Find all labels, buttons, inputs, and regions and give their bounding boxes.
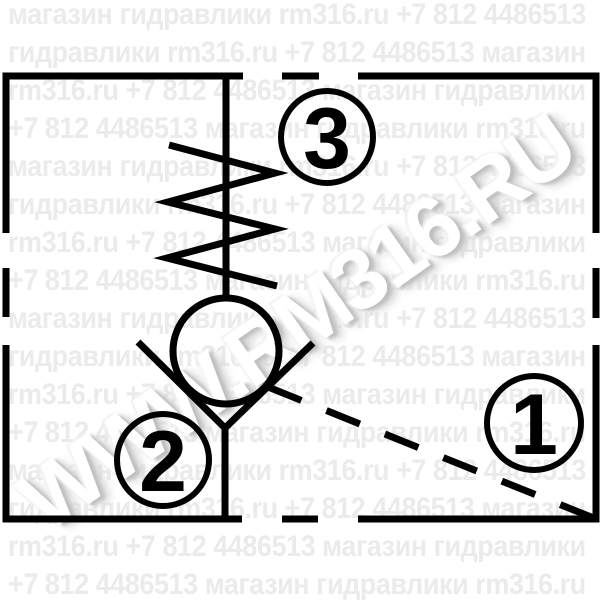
spring-symbol xyxy=(167,145,277,286)
valve-schematic: 3 2 1 xyxy=(0,0,600,600)
port-1-label: 1 xyxy=(510,377,558,473)
port-2-label: 2 xyxy=(139,414,187,510)
port-3-label: 3 xyxy=(303,91,351,187)
diagram-canvas: магазин гидравлики rm316.ru +7 812 44865… xyxy=(0,0,600,600)
